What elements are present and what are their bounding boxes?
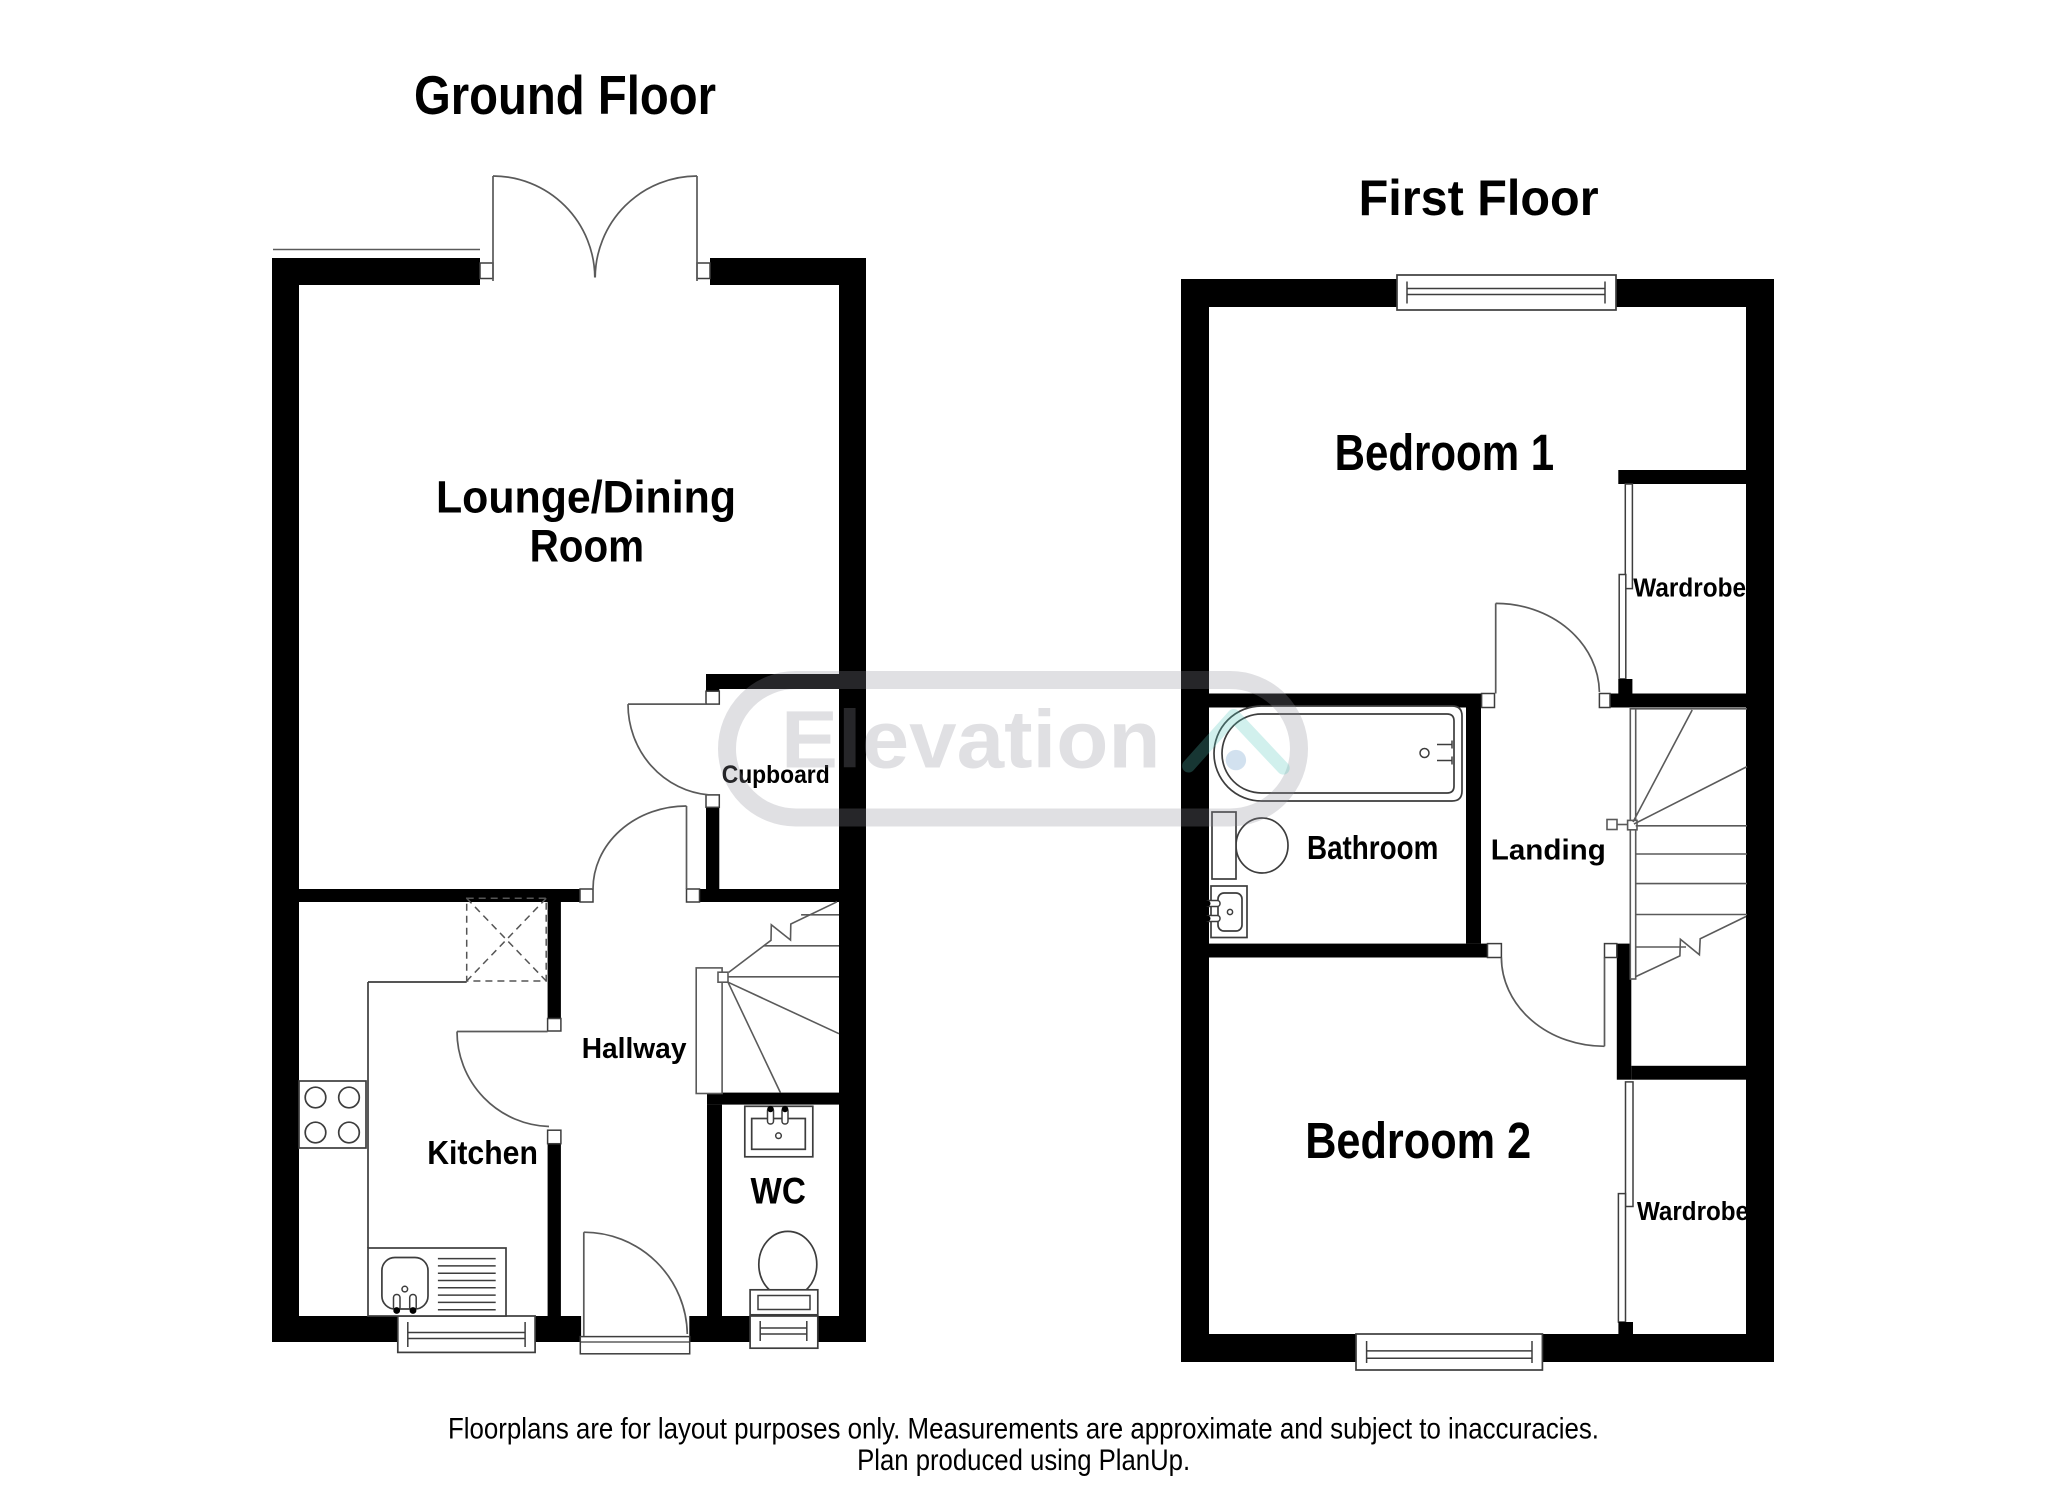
svg-text:Lounge/Dining: Lounge/Dining	[436, 472, 736, 523]
svg-text:Floorplans are for layout purp: Floorplans are for layout purposes only.…	[448, 1413, 1599, 1446]
svg-text:Hallway: Hallway	[582, 1033, 687, 1065]
svg-text:Elevation: Elevation	[781, 695, 1161, 786]
svg-text:Landing: Landing	[1491, 835, 1606, 867]
svg-text:Bedroom 2: Bedroom 2	[1305, 1112, 1531, 1169]
svg-text:Room: Room	[530, 521, 645, 572]
svg-text:Bathroom: Bathroom	[1307, 829, 1438, 866]
svg-text:WC: WC	[751, 1170, 806, 1211]
svg-text:Wardrobe: Wardrobe	[1637, 1198, 1749, 1226]
svg-text:Plan produced using PlanUp.: Plan produced using PlanUp.	[857, 1444, 1190, 1477]
svg-text:Kitchen: Kitchen	[427, 1134, 538, 1171]
svg-text:Wardrobe: Wardrobe	[1633, 575, 1746, 603]
svg-text:First Floor: First Floor	[1359, 170, 1599, 226]
svg-text:Bedroom 1: Bedroom 1	[1335, 424, 1555, 481]
svg-text:Ground Floor: Ground Floor	[414, 64, 716, 126]
